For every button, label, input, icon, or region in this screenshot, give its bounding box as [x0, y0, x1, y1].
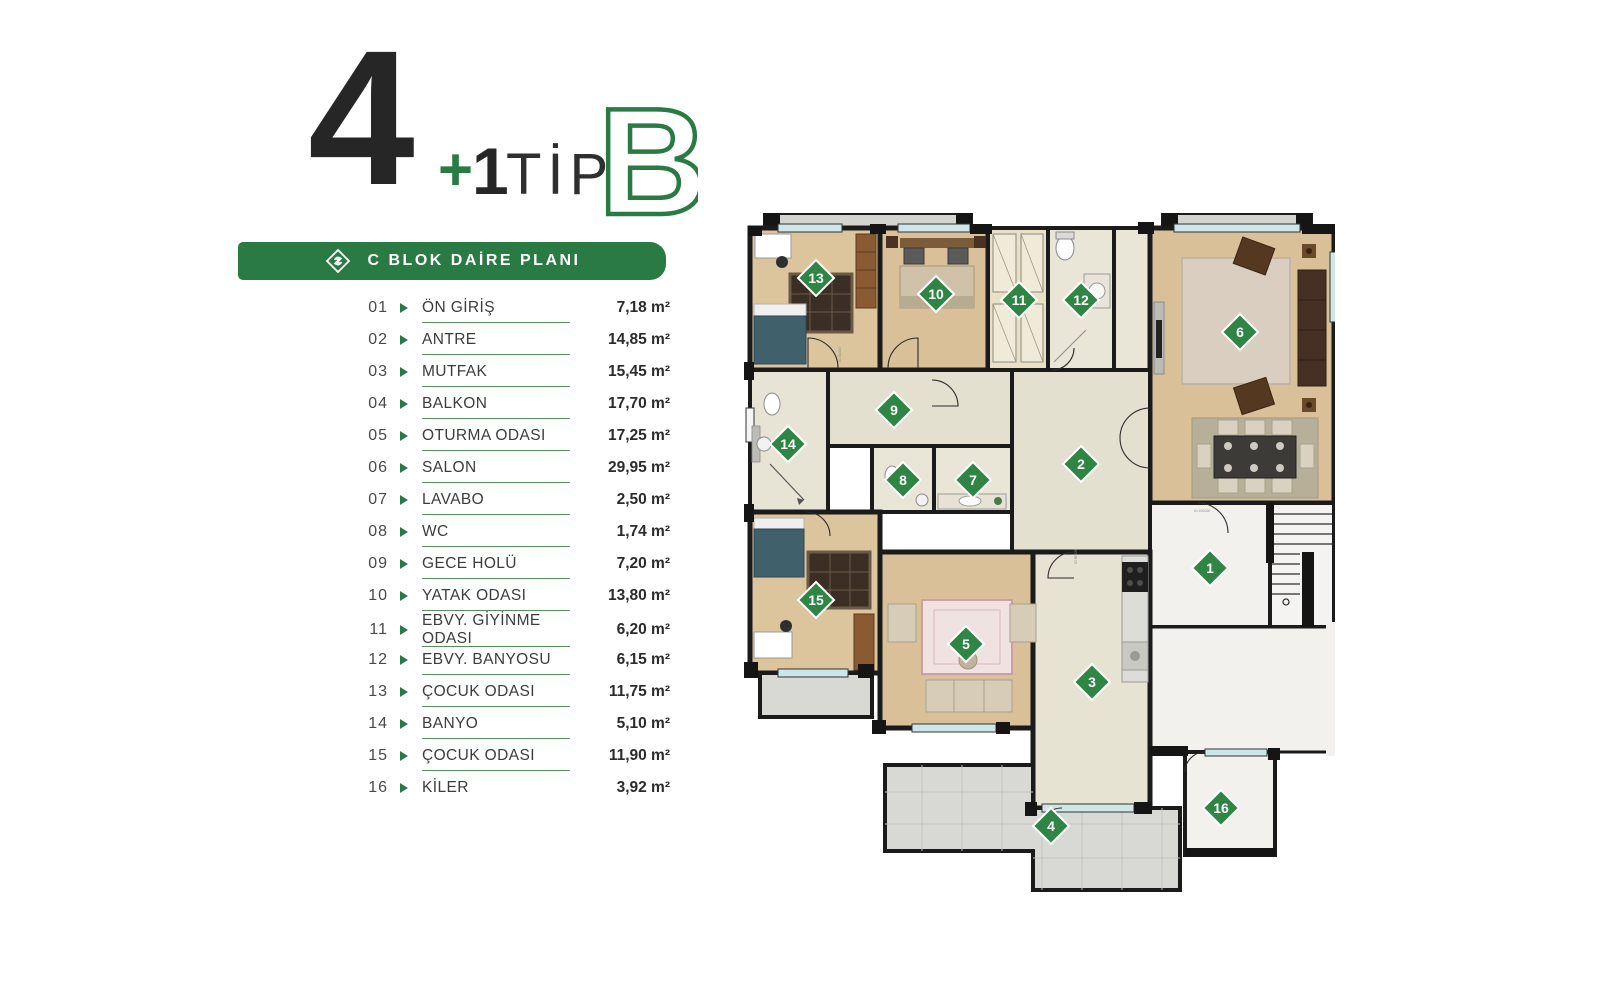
arrow-right-icon	[400, 751, 408, 761]
room-area: 6,15 m²	[574, 651, 670, 669]
room-area: 11,90 m²	[574, 747, 670, 765]
arrow-right-icon	[400, 463, 408, 473]
room-area: 3,92 m²	[574, 779, 670, 797]
room-legend: 01 ÖN GİRİŞ 7,18 m² 02 ANTRE 14,85 m² 03…	[360, 292, 670, 804]
room-row: 13 ÇOCUK ODASI 11,75 m²	[360, 676, 670, 708]
title-plus-sign: +	[438, 140, 473, 200]
floor-plan: K1 90/220 K2 80/220 K1 100/220 123456789…	[742, 212, 1335, 893]
room-number: 01	[360, 299, 388, 317]
arrow-right-icon	[400, 783, 408, 793]
room-row: 12 EBVY. BANYOSU 6,15 m²	[360, 644, 670, 676]
page: 4 + 1 TİP B C BLOK DAİRE PLANI 01 ÖN GİR…	[0, 0, 1600, 1000]
room-area: 14,85 m²	[574, 331, 670, 349]
room-row: 06 SALON 29,95 m²	[360, 452, 670, 484]
room-row: 10 YATAK ODASI 13,80 m²	[360, 580, 670, 612]
arrow-right-icon	[400, 367, 408, 377]
room-name: YATAK ODASI	[412, 580, 574, 612]
svg-text:13: 13	[808, 270, 824, 286]
door-label: K1 90/220	[838, 347, 842, 362]
svg-text:5: 5	[962, 636, 970, 652]
room-name: OTURMA ODASI	[412, 420, 574, 452]
room-number: 08	[360, 523, 388, 541]
room-area: 6,20 m²	[574, 621, 670, 639]
room-area: 11,75 m²	[574, 683, 670, 701]
room-area: 13,80 m²	[574, 587, 670, 605]
title-after-plus: 1	[472, 138, 509, 204]
room-number: 03	[360, 363, 388, 381]
room-number: 05	[360, 427, 388, 445]
room-row: 09 GECE HOLÜ 7,20 m²	[360, 548, 670, 580]
corridor-floor	[1114, 228, 1150, 370]
room-row: 15 ÇOCUK ODASI 11,90 m²	[360, 740, 670, 772]
arrow-right-icon	[400, 431, 408, 441]
svg-text:1: 1	[1206, 560, 1214, 576]
room-name: ANTRE	[412, 324, 574, 356]
room-row: 01 ÖN GİRİŞ 7,18 m²	[360, 292, 670, 324]
room-area: 5,10 m²	[574, 715, 670, 733]
svg-text:10: 10	[928, 286, 944, 302]
svg-text:11: 11	[1012, 292, 1027, 308]
svg-text:2: 2	[1077, 456, 1085, 472]
brand-diamond-logo-icon	[324, 247, 352, 275]
room-area: 1,74 m²	[574, 523, 670, 541]
room-area: 2,50 m²	[574, 491, 670, 509]
room-row: 03 MUTFAK 15,45 m²	[360, 356, 670, 388]
arrow-right-icon	[400, 719, 408, 729]
room-name: BANYO	[412, 708, 574, 740]
room-number: 06	[360, 459, 388, 477]
room-name: EBVY. GİYİNME ODASI	[412, 612, 574, 648]
svg-text:6: 6	[1236, 324, 1244, 340]
room-name: ÇOCUK ODASI	[412, 740, 574, 772]
room-row: 07 LAVABO 2,50 m²	[360, 484, 670, 516]
arrow-right-icon	[400, 591, 408, 601]
room-number: 15	[360, 747, 388, 765]
arrow-right-icon	[400, 495, 408, 505]
room-area: 17,70 m²	[574, 395, 670, 413]
room-name: LAVABO	[412, 484, 574, 516]
banner: C BLOK DAİRE PLANI	[238, 242, 666, 280]
title-big-number: 4	[308, 22, 407, 214]
arrow-right-icon	[400, 559, 408, 569]
room-name: ÖN GİRİŞ	[412, 292, 574, 324]
room-name: WC	[412, 516, 574, 548]
room-number: 07	[360, 491, 388, 509]
door-label: K2 80/220	[1074, 549, 1078, 564]
room-area: 7,20 m²	[574, 555, 670, 573]
room-name: BALKON	[412, 388, 574, 420]
svg-text:4: 4	[1047, 818, 1055, 834]
room-number: 14	[360, 715, 388, 733]
room-name: ÇOCUK ODASI	[412, 676, 574, 708]
room-area: 7,18 m²	[574, 299, 670, 317]
room-name: GECE HOLÜ	[412, 548, 574, 580]
room-row: 08 WC 1,74 m²	[360, 516, 670, 548]
svg-text:15: 15	[808, 592, 824, 608]
banner-label: C BLOK DAİRE PLANI	[368, 252, 581, 270]
room-name: EBVY. BANYOSU	[412, 644, 574, 676]
arrow-right-icon	[400, 687, 408, 697]
room-number: 12	[360, 651, 388, 669]
door-label: K1 100/220	[1194, 509, 1211, 513]
room-number: 09	[360, 555, 388, 573]
svg-text:16: 16	[1213, 800, 1229, 816]
room-row: 05 OTURMA ODASI 17,25 m²	[360, 420, 670, 452]
room-area: 15,45 m²	[574, 363, 670, 381]
common-hall-floor	[1150, 627, 1334, 752]
room-number: 10	[360, 587, 388, 605]
svg-text:8: 8	[899, 472, 907, 488]
room-name: KİLER	[412, 772, 574, 804]
svg-text:14: 14	[780, 436, 796, 452]
svg-text:9: 9	[890, 402, 898, 418]
arrow-right-icon	[400, 399, 408, 409]
room-row: 02 ANTRE 14,85 m²	[360, 324, 670, 356]
room-row: 14 BANYO 5,10 m²	[360, 708, 670, 740]
room-name: SALON	[412, 452, 574, 484]
arrow-right-icon	[400, 527, 408, 537]
room-area: 29,95 m²	[574, 459, 670, 477]
small-balcony-floor	[760, 673, 872, 717]
arrow-right-icon	[400, 655, 408, 665]
arrow-right-icon	[400, 303, 408, 313]
svg-text:7: 7	[969, 472, 977, 488]
room-number: 11	[360, 621, 388, 639]
room-row: 04 BALKON 17,70 m²	[360, 388, 670, 420]
svg-text:12: 12	[1073, 292, 1089, 308]
room-09-gece-holu-floor	[828, 370, 1012, 446]
room-row: 11 EBVY. GİYİNME ODASI 6,20 m²	[360, 612, 670, 644]
svg-text:B: B	[598, 86, 698, 236]
title-type-letter: B	[598, 86, 698, 236]
room-name: MUTFAK	[412, 356, 574, 388]
room-number: 02	[360, 331, 388, 349]
arrow-right-icon	[400, 335, 408, 345]
room-row: 16 KİLER 3,92 m²	[360, 772, 670, 804]
room-area: 17,25 m²	[574, 427, 670, 445]
room-number: 04	[360, 395, 388, 413]
room-number: 13	[360, 683, 388, 701]
arrow-right-icon	[400, 625, 408, 635]
svg-text:3: 3	[1088, 674, 1096, 690]
room-number: 16	[360, 779, 388, 797]
